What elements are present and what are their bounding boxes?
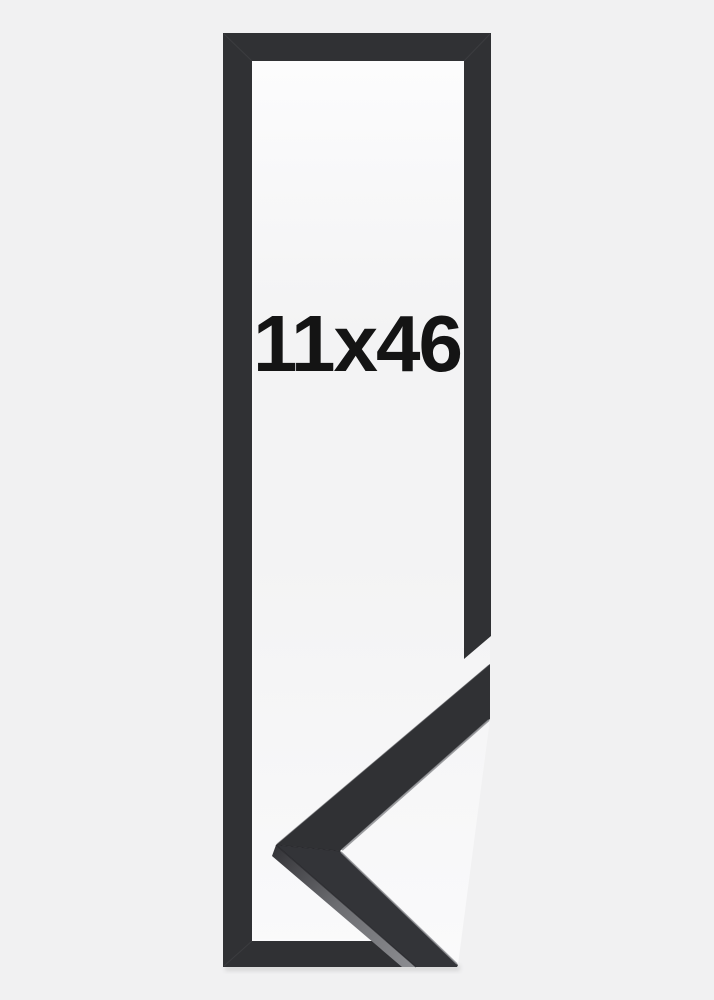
size-label: 11x46: [253, 299, 461, 388]
frame-top-bar: [223, 33, 491, 61]
frame-illustration: 11x46: [0, 0, 714, 1000]
frame-product-image: 11x46: [0, 0, 714, 1000]
frame-inner-area: [252, 61, 490, 965]
frame-right-bar: [464, 33, 491, 659]
frame-left-bar: [223, 33, 252, 967]
